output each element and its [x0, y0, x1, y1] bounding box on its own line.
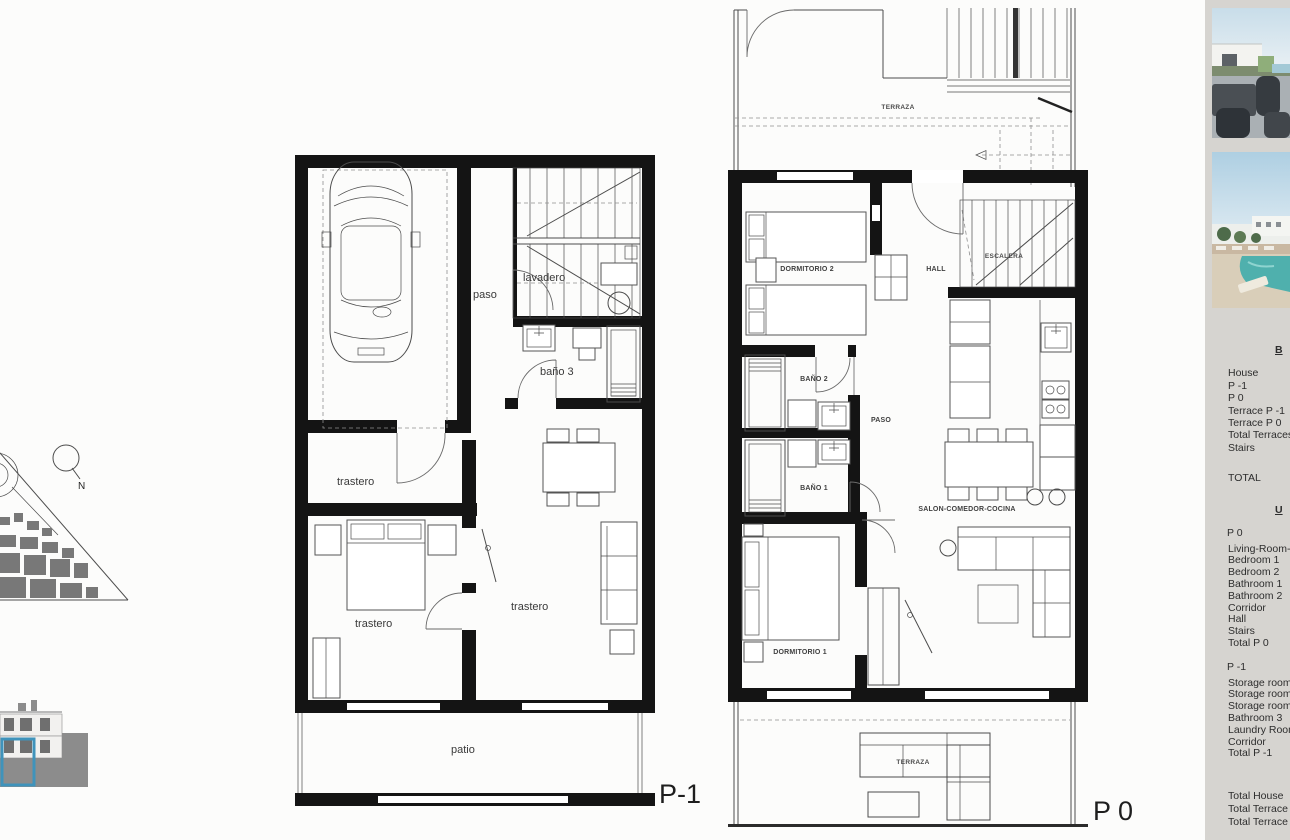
room-label-salon: SALON-COMEDOR-COCINA	[918, 506, 1015, 513]
terrace-top: TERRAZA	[734, 8, 1075, 187]
room-label-paso: paso	[473, 289, 497, 301]
useful-row: Bathroom 2	[1205, 591, 1290, 603]
dining-table-p1	[543, 429, 615, 506]
grand-total-row: Total Terrace	[1205, 803, 1290, 816]
bedroom2-furniture	[746, 212, 907, 335]
room-label-bano1: BAÑO 1	[800, 483, 828, 492]
room-label-dormitorio2: DORMITORIO 2	[780, 266, 834, 273]
washer	[601, 246, 637, 314]
north-label: N	[78, 481, 85, 492]
room-label-terraza-bottom: TERRAZA	[896, 759, 929, 766]
sofa-p1	[601, 522, 637, 654]
room-label-bano3: baño 3	[540, 366, 574, 378]
useful-row: Corridor	[1205, 603, 1290, 615]
car-top-view	[322, 162, 420, 362]
floorplan-page: N	[0, 0, 1290, 840]
grand-totals: Total House Total Terrace Total Terrace	[1205, 790, 1290, 829]
useful-row: Total P -1	[1205, 748, 1290, 760]
floor-label-p0: P 0	[1093, 796, 1133, 826]
room-label-terraza-top: TERRAZA	[881, 104, 914, 111]
sofa-p0	[940, 527, 1070, 637]
stairs-p1	[513, 168, 640, 318]
built-total-row: TOTAL	[1205, 472, 1290, 484]
useful-row: Bathroom 1	[1205, 579, 1290, 591]
useful-row: Bathroom 3	[1205, 713, 1290, 725]
built-header: B	[1205, 344, 1290, 356]
north-arrow: N	[53, 445, 85, 492]
bedroom1-furniture	[742, 524, 932, 685]
useful-p0-header: P 0	[1205, 528, 1290, 540]
useful-p1-header: P -1	[1205, 662, 1290, 674]
built-row: Total Terraces	[1205, 429, 1290, 441]
info-sidebar: B House P -1 P 0 Terrace P -1 Terrace P …	[1205, 0, 1290, 840]
floor-label-p1: P-1	[659, 779, 701, 809]
built-row: House	[1205, 367, 1290, 379]
room-label-escalera: ESCALERA	[985, 253, 1023, 260]
room-label-bano2: BAÑO 2	[800, 374, 828, 383]
built-row: Stairs	[1205, 442, 1290, 454]
pool-photo-thumbnail[interactable]	[1212, 152, 1290, 308]
elevation-silhouette	[0, 700, 88, 787]
floorplan-p0: TERRAZA	[720, 0, 1140, 840]
bathroom2-fixtures	[745, 355, 850, 431]
bed-p1	[313, 520, 456, 698]
floorplan-p1: paso lavadero baño 3 trastero trastero t…	[285, 148, 705, 838]
pool-photo	[1212, 152, 1290, 308]
site-plan: N	[0, 395, 140, 610]
terrace-bottom: TERRAZA	[728, 702, 1088, 827]
built-row: P 0	[1205, 392, 1290, 404]
stairs-p0: ESCALERA	[960, 200, 1075, 287]
useful-header: U	[1205, 505, 1290, 517]
bathroom1-fixtures	[745, 440, 850, 516]
room-label-hall: HALL	[926, 266, 946, 273]
room-label-dormitorio1: DORMITORIO 1	[773, 649, 827, 656]
room-label-patio: patio	[451, 744, 475, 756]
useful-surface-table: U P 0 Living-Room-K Bedroom 1 Bedroom 2 …	[1205, 505, 1290, 760]
terrace-photo	[1212, 8, 1290, 138]
room-label-trastero-right: trastero	[511, 601, 548, 613]
useful-row: Total P 0	[1205, 638, 1290, 650]
room-label-paso-p0: PASO	[871, 417, 891, 424]
room-label-trastero-top: trastero	[337, 476, 374, 488]
useful-row: Laundry Room	[1205, 725, 1290, 737]
room-label-trastero-left: trastero	[355, 618, 392, 630]
room-label-lavadero: lavadero	[523, 272, 565, 284]
grand-total-row: Total House	[1205, 790, 1290, 803]
built-row: P -1	[1205, 380, 1290, 392]
built-surface-table: B House P -1 P 0 Terrace P -1 Terrace P …	[1205, 344, 1290, 485]
built-row: Terrace P -1	[1205, 405, 1290, 417]
built-row: Terrace P 0	[1205, 417, 1290, 429]
building-elevation	[0, 695, 100, 805]
parking-bay-outline	[323, 170, 447, 428]
terrace-photo-thumbnail[interactable]	[1212, 8, 1290, 138]
grand-total-row: Total Terrace	[1205, 816, 1290, 829]
